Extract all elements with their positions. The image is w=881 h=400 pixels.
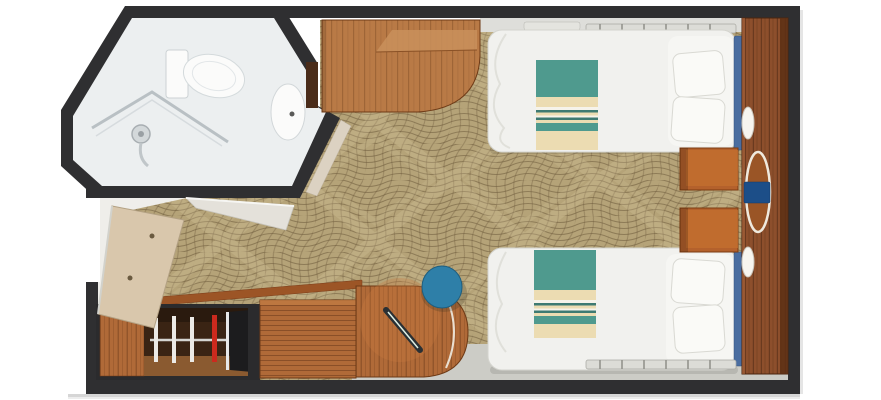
sink-basin [271,84,305,140]
sink [271,84,305,140]
blanket-stripe [536,123,598,131]
pillow [672,304,725,353]
blanket-stripe [534,324,596,338]
blanket-stripe [534,316,596,324]
doorway-opening [84,198,100,282]
blanket-stripe [536,118,598,121]
bed-rail-small [524,22,580,30]
blanket-stripe [534,290,596,300]
bathroom-wall-wood-accent [306,62,318,108]
blanket-stripe [534,311,596,314]
clothes-highlight [226,312,229,370]
hanger [190,317,194,362]
door-handle-dot [128,276,133,281]
vanity-panel [742,18,788,374]
reading-lamp-2 [742,247,754,277]
desk-shelf [376,30,477,52]
blanket-stripe [534,306,596,309]
blanket-stripe [536,60,598,97]
shower-head-center [138,131,144,137]
nightstand-shade [680,208,688,252]
blanket-stripe [536,110,598,113]
blanket-stripe [536,97,598,107]
vanity-chair [744,182,770,203]
twin-bed-lower [488,248,743,374]
blanket-stripe [534,309,596,311]
blanket-stripe [536,131,598,150]
pillow [671,258,726,306]
door-handle-dot [150,234,155,239]
bed-runner-blanket [534,250,596,338]
right-wall [788,6,800,394]
twin-bed-upper [488,22,743,154]
blanket-stripe [534,250,596,290]
nightstand-2 [680,208,738,252]
hanger [172,316,176,363]
blanket-stripe [536,113,598,116]
floorplan-image [0,0,881,400]
panel-dark-edge [780,18,788,374]
blanket-stripe [536,120,598,123]
dresser [260,300,356,378]
blanket-stripe [536,107,598,110]
blanket-stripe [534,313,596,316]
nightstand-1 [680,148,738,190]
desk-cabinet [322,20,480,112]
nightstand-top [686,210,738,248]
floorplan-canvas [0,0,881,400]
bed-runner-blanket [536,60,598,150]
red-hanger [212,315,217,362]
bed-rail [586,360,736,369]
sink-drain [290,112,295,117]
top-wall [270,6,800,18]
blanket-stripe [534,300,596,303]
dresser-top-edge [260,300,356,305]
reading-lamp-1 [742,107,754,139]
pillow [671,96,726,144]
bottom-wall [86,380,800,394]
desk-side-shadow [322,20,326,112]
blanket-stripe [536,116,598,118]
blanket-stripe [534,303,596,306]
nightstand-top [686,150,738,186]
closet-divider [248,304,260,380]
nightstand-shade [680,148,688,190]
pillow [672,50,726,98]
